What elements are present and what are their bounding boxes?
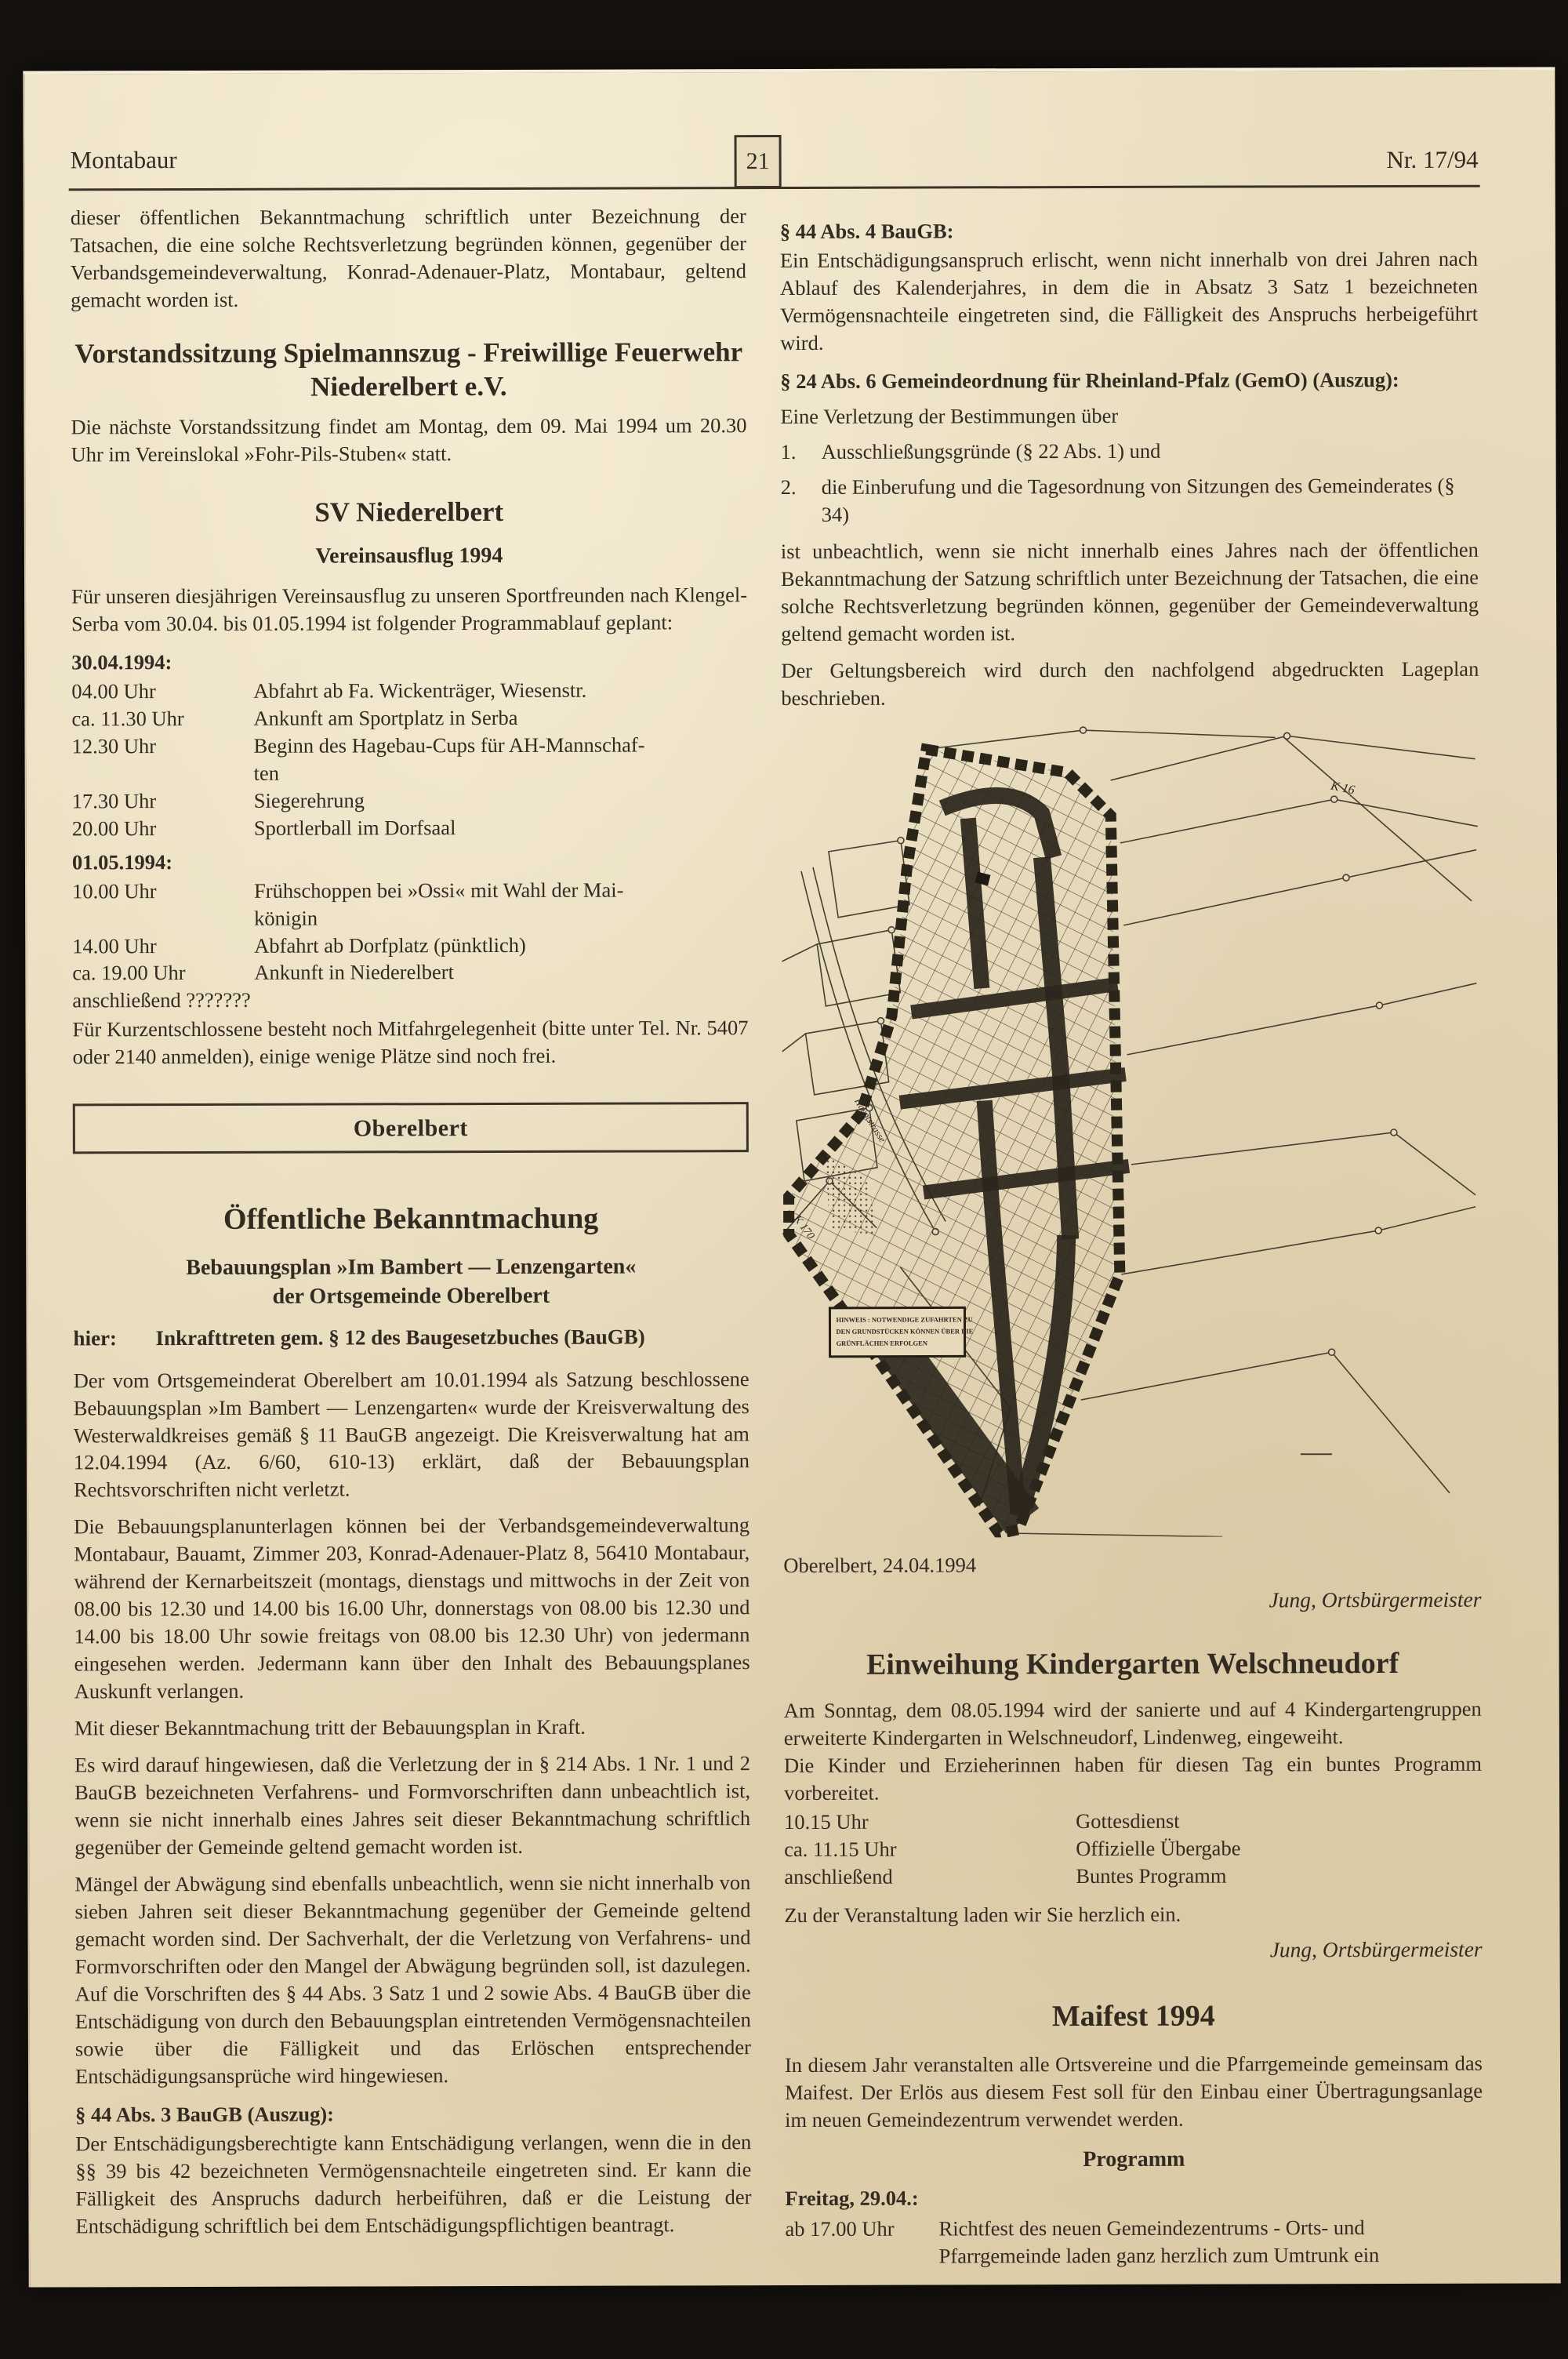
schedule-time: 17.30 Uhr [72, 787, 254, 815]
oberelbert-section-box: Oberelbert [73, 1102, 749, 1154]
legend-line-3: GRÜNFLÄCHEN ERFOLGEN [837, 1339, 928, 1347]
maifest-p1: In diesem Jahr veranstalten alle Ortsver… [785, 2050, 1483, 2134]
header-publication: Montabaur [71, 146, 177, 174]
bekanntmachung-p5: Mängel der Abwägung sind ebenfalls unbea… [74, 1869, 751, 2090]
kindergarten-title: Einweihung Kindergarten Welschneudorf [784, 1645, 1482, 1683]
intro-paragraph: dieser öffentlichen Bekanntmachung schri… [71, 202, 746, 314]
sv-intro: Für unseren diesjährigen Vereinsausflug … [71, 581, 747, 638]
schedule-desc: Frühschoppen bei »Ossi« mit Wahl der Mai… [254, 876, 748, 932]
list-text: die Einberufung und die Tagesordnung von… [822, 471, 1479, 528]
oberelbert-section-label: Oberelbert [354, 1113, 468, 1144]
schedule-time: ca. 19.00 Uhr [72, 959, 254, 987]
kindergarten-p1: Am Sonntag, dem 08.05.1994 wird der sani… [784, 1696, 1482, 1752]
kindergarten-p2: Die Kinder und Erzieherinnen haben für d… [784, 1750, 1482, 1807]
bekanntmachung-p1: Der vom Ortsgemeinderat Oberelbert am 10… [74, 1365, 750, 1504]
schedule-desc: Abfahrt ab Fa. Wickenträger, Wiesenstr. [253, 676, 747, 705]
schedule-time: 12.30 Uhr [72, 732, 254, 788]
list-number: 1. [781, 438, 822, 466]
vorstand-title: Vorstandssitzung Spielmannszug - Freiwil… [71, 336, 746, 405]
vorstand-body: Die nächste Vorstandssitzung findet am M… [71, 412, 746, 468]
site-plan-map: HINWEIS : NOTWENDIGE ZUFAHRTEN ZU DEN GR… [781, 724, 1481, 1544]
schedule-desc: Richtfest des neuen Gemeindezentrums - O… [938, 2214, 1483, 2270]
list-text: Ausschließungsgründe (§ 22 Abs. 1) und [822, 436, 1479, 465]
s44-3-text: Der Entschädigungsberechtigte kann Entsc… [75, 2128, 751, 2240]
maifest-title: Maifest 1994 [785, 1998, 1483, 2036]
schedule-time: 20.00 Uhr [72, 814, 254, 842]
list-number: 2. [781, 474, 822, 529]
sv-day2-label: 01.05.1994: [72, 847, 748, 876]
schedule-time: 14.00 Uhr [72, 932, 254, 960]
bekanntmachung-p4: Es wird darauf hingewiesen, daß die Verl… [74, 1750, 750, 1861]
hier-label: hier: [73, 1325, 155, 1353]
schedule-desc: Sportlerball im Dorfsaal [254, 813, 748, 842]
schedule-time: ab 17.00 Uhr [785, 2215, 938, 2270]
schedule-time: ca. 11.30 Uhr [71, 705, 253, 733]
sv-anschliessend: anschließend ??????? [72, 986, 748, 1015]
sv-day1-schedule: 04.00 Uhr Abfahrt ab Fa. Wickenträger, W… [71, 676, 748, 842]
page-number: 21 [746, 148, 770, 175]
scanned-newsletter-page: Montabaur 21 Nr. 17/94 dieser öffentlich… [23, 67, 1560, 2287]
header-issue: Nr. 17/94 [1386, 146, 1478, 174]
s44-4-text: Ein Entschädigungsanspruch erlischt, wen… [780, 245, 1478, 357]
lageplan-drawing: HINWEIS : NOTWENDIGE ZUFAHRTEN ZU DEN GR… [781, 724, 1481, 1537]
sv-subtitle: Vereinsausflug 1994 [71, 541, 747, 570]
schedule-time: 04.00 Uhr [71, 678, 253, 706]
gemo-intro: Eine Verletzung der Bestimmungen über [780, 402, 1478, 431]
gemo-item-1: 1. Ausschließungsgründe (§ 22 Abs. 1) un… [781, 436, 1479, 465]
sv-day1-label: 30.04.1994: [71, 647, 747, 676]
maifest-schedule: ab 17.00 Uhr Richtfest des neuen Gemeind… [785, 2214, 1483, 2270]
gemo-item-2: 2. die Einberufung und die Tagesordnung … [781, 471, 1479, 528]
hier-text: Inkrafttreten gem. § 12 des Baugesetzbuc… [155, 1323, 749, 1353]
schedule-desc: Offizielle Übergabe [1076, 1834, 1482, 1863]
bekanntmachung-p2: Die Bebauungsplanunterlagen können bei d… [74, 1512, 750, 1706]
schedule-time: 10.00 Uhr [72, 877, 254, 932]
bekanntmachung-subtitle2: der Ortsgemeinde Oberelbert [73, 1281, 749, 1310]
schedule-desc: Ankunft in Niederelbert [254, 958, 748, 987]
schedule-desc: Gottesdienst [1076, 1807, 1482, 1835]
road-label-k16: K 16 [1329, 779, 1356, 797]
schedule-time: 10.15 Uhr [784, 1808, 1076, 1836]
schedule-desc: Siegerehrung [254, 786, 748, 815]
signature-jung-1: Jung, Ortsbürgermeister [783, 1586, 1481, 1616]
right-column: § 44 Abs. 4 BauGB: Ein Entschädigungsans… [780, 205, 1483, 2270]
signature-jung-2: Jung, Ortsbürgermeister [785, 1936, 1483, 1966]
legend-line-1: HINWEIS : NOTWENDIGE ZUFAHRTEN ZU [836, 1315, 972, 1323]
schedule-desc: Ankunft am Sportplatz in Serba [253, 703, 747, 732]
bekanntmachung-subtitle1: Bebauungsplan »Im Bambert — Lenzengarten… [73, 1252, 749, 1281]
map-legend-box: HINWEIS : NOTWENDIGE ZUFAHRTEN ZU DEN GR… [829, 1307, 973, 1356]
gemo-outro: ist unbeachtlich, wenn sie nicht innerha… [781, 536, 1479, 647]
kindergarten-outro: Zu der Veranstaltung laden wir Sie herzl… [784, 1900, 1482, 1929]
kindergarten-schedule: 10.15 Uhr Gottesdienst ca. 11.15 Uhr Off… [784, 1807, 1482, 1891]
s44-3-label: § 44 Abs. 3 BauGB (Auszug): [75, 2099, 751, 2128]
schedule-desc: Buntes Programm [1076, 1862, 1482, 1890]
sv-day2-schedule: 10.00 Uhr Frühschoppen bei »Ossi« mit Wa… [72, 876, 748, 987]
maifest-program-label: Programm [785, 2145, 1483, 2174]
gemo-label: § 24 Abs. 6 Gemeindeordnung für Rheinlan… [780, 366, 1478, 395]
hier-line: hier: Inkrafttreten gem. § 12 des Bauges… [73, 1323, 749, 1353]
bekanntmachung-title: Öffentliche Bekanntmachung [73, 1201, 749, 1238]
left-column: dieser öffentlichen Bekanntmachung schri… [71, 202, 752, 2240]
date-line: Oberelbert, 24.04.1994 [783, 1550, 1481, 1579]
geltungsbereich-text: Der Geltungsbereich wird durch den nachf… [781, 655, 1479, 711]
legend-line-2: DEN GRUNDSTÜCKEN KÖNNEN ÜBER DIE [837, 1327, 974, 1335]
sv-title: SV Niederelbert [71, 495, 747, 530]
schedule-time: anschließend [784, 1863, 1076, 1891]
maifest-day-label: Freitag, 29.04.: [785, 2183, 1483, 2212]
schedule-time: ca. 11.15 Uhr [784, 1835, 1076, 1863]
schedule-desc: Abfahrt ab Dorfplatz (pünktlich) [254, 931, 748, 960]
page-number-box: 21 [735, 135, 782, 188]
schedule-desc: Beginn des Hagebau-Cups für AH-Mannschaf… [254, 731, 748, 787]
bekanntmachung-p3: Mit dieser Bekanntmachung tritt der Beba… [74, 1713, 750, 1742]
sv-outro: Für Kurzentschlossene besteht noch Mitfa… [72, 1015, 748, 1071]
s44-4-label: § 44 Abs. 4 BauGB: [780, 216, 1478, 245]
